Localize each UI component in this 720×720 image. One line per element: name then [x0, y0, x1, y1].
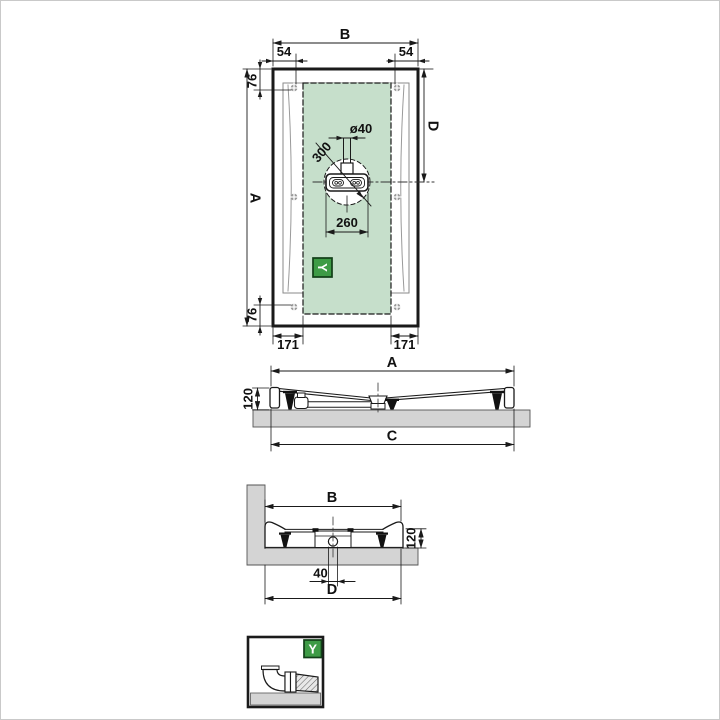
tray-edge-right	[505, 388, 515, 409]
plan-view: B 54 54 76 A	[243, 27, 441, 352]
dim-plan-d-label: D	[425, 121, 441, 131]
drain-position-badge-detail: Y	[304, 640, 322, 658]
tray-edge-left	[270, 388, 280, 409]
dim-front-a: A	[271, 355, 514, 386]
dim-plan-171-left-label: 171	[277, 337, 299, 352]
pipe-hatched-section	[296, 674, 318, 692]
dim-side-d-label: D	[327, 582, 337, 598]
waste-elbow	[295, 397, 309, 409]
front-section-view: A C 120	[241, 355, 531, 451]
dim-plan-d: D	[420, 69, 441, 182]
dim-plan-54-left-label: 54	[277, 44, 292, 59]
side-section-view: B 120 40 D	[247, 485, 426, 604]
dim-plan-drain-dia-label: ø40	[350, 121, 372, 136]
dim-plan-b-label: B	[340, 27, 350, 43]
y-marker-icon: Y	[308, 641, 317, 656]
dim-front-a-label: A	[387, 355, 398, 371]
dim-front-c-label: C	[387, 429, 398, 445]
waste-elbow-top	[298, 393, 306, 398]
y-marker-icon: Y	[315, 263, 330, 272]
dim-front-120-label: 120	[241, 388, 256, 410]
detail-floor	[251, 693, 321, 705]
dim-plan-b: B	[273, 27, 418, 66]
drain-pipe-stub	[341, 163, 353, 174]
dim-plan-a-label: A	[247, 193, 263, 204]
pipe-ring-2	[291, 672, 297, 692]
dim-side-40-label: 40	[313, 566, 327, 581]
dim-plan-171-right-label: 171	[394, 337, 416, 352]
dim-side-b-label: B	[327, 490, 337, 506]
dim-plan-54-right-label: 54	[399, 44, 414, 59]
waste-pipe	[308, 402, 371, 408]
floor-slab-front	[253, 410, 530, 427]
dim-plan-a: A	[243, 69, 271, 326]
dim-plan-260-label: 260	[336, 215, 358, 230]
drawing-page: B 54 54 76 A	[0, 0, 720, 720]
drain-position-badge-plan: Y	[313, 258, 332, 277]
dim-plan-76-bottom-label: 76	[245, 308, 260, 322]
pipe-ring-1	[285, 672, 291, 692]
dim-front-120: 120	[241, 388, 270, 410]
dim-side-120: 120	[404, 528, 427, 550]
shower-tray-technical-drawing: B 54 54 76 A	[1, 1, 719, 719]
dim-side-120-label: 120	[404, 528, 419, 550]
detail-box: Y	[248, 637, 323, 707]
